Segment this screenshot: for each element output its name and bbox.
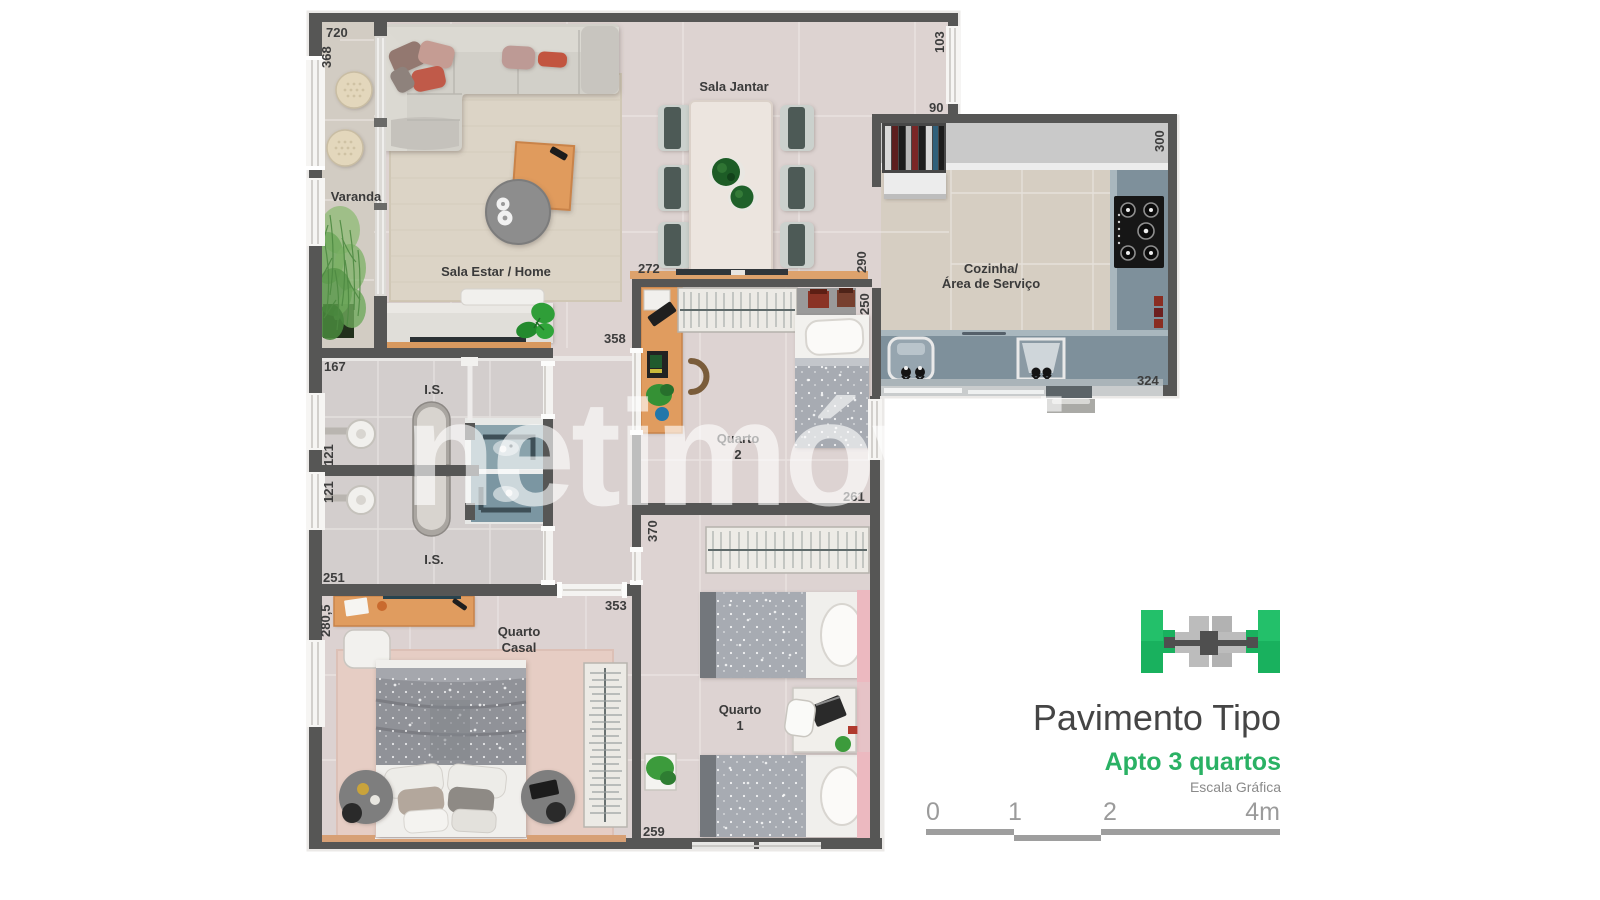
svg-text:Sala Estar / Home: Sala Estar / Home bbox=[441, 264, 551, 279]
svg-text:netimóveis: netimóveis bbox=[404, 369, 1148, 537]
svg-text:Sala Jantar: Sala Jantar bbox=[699, 79, 768, 94]
svg-text:2: 2 bbox=[1103, 798, 1117, 826]
svg-text:300: 300 bbox=[1152, 130, 1167, 152]
svg-text:358: 358 bbox=[604, 331, 626, 346]
svg-text:90: 90 bbox=[929, 100, 943, 115]
svg-text:250: 250 bbox=[857, 293, 872, 315]
svg-text:167: 167 bbox=[324, 359, 346, 374]
svg-text:121: 121 bbox=[321, 481, 336, 503]
svg-text:Área de Serviço: Área de Serviço bbox=[942, 276, 1040, 291]
svg-text:Apto 3 quartos: Apto 3 quartos bbox=[1105, 748, 1281, 776]
svg-text:290: 290 bbox=[854, 251, 869, 273]
svg-text:4m: 4m bbox=[1245, 798, 1280, 826]
svg-text:0: 0 bbox=[926, 798, 940, 826]
svg-text:Cozinha/: Cozinha/ bbox=[964, 261, 1019, 276]
svg-text:Pavimento Tipo: Pavimento Tipo bbox=[1033, 697, 1281, 738]
svg-text:353: 353 bbox=[605, 598, 627, 613]
svg-text:Escala Gráfica: Escala Gráfica bbox=[1190, 779, 1281, 795]
svg-text:251: 251 bbox=[323, 570, 345, 585]
svg-text:368: 368 bbox=[319, 46, 334, 68]
svg-text:Quarto: Quarto bbox=[719, 702, 762, 717]
svg-text:272: 272 bbox=[638, 261, 660, 276]
svg-text:280,5: 280,5 bbox=[318, 604, 333, 637]
svg-text:1: 1 bbox=[736, 718, 743, 733]
svg-text:I.S.: I.S. bbox=[424, 552, 444, 567]
svg-text:Quarto: Quarto bbox=[498, 624, 541, 639]
svg-text:103: 103 bbox=[932, 31, 947, 53]
svg-text:720: 720 bbox=[326, 25, 348, 40]
svg-text:Varanda: Varanda bbox=[331, 189, 382, 204]
svg-text:1: 1 bbox=[1008, 798, 1022, 826]
svg-text:121: 121 bbox=[321, 444, 336, 466]
svg-text:259: 259 bbox=[643, 824, 665, 839]
svg-text:Casal: Casal bbox=[502, 640, 537, 655]
